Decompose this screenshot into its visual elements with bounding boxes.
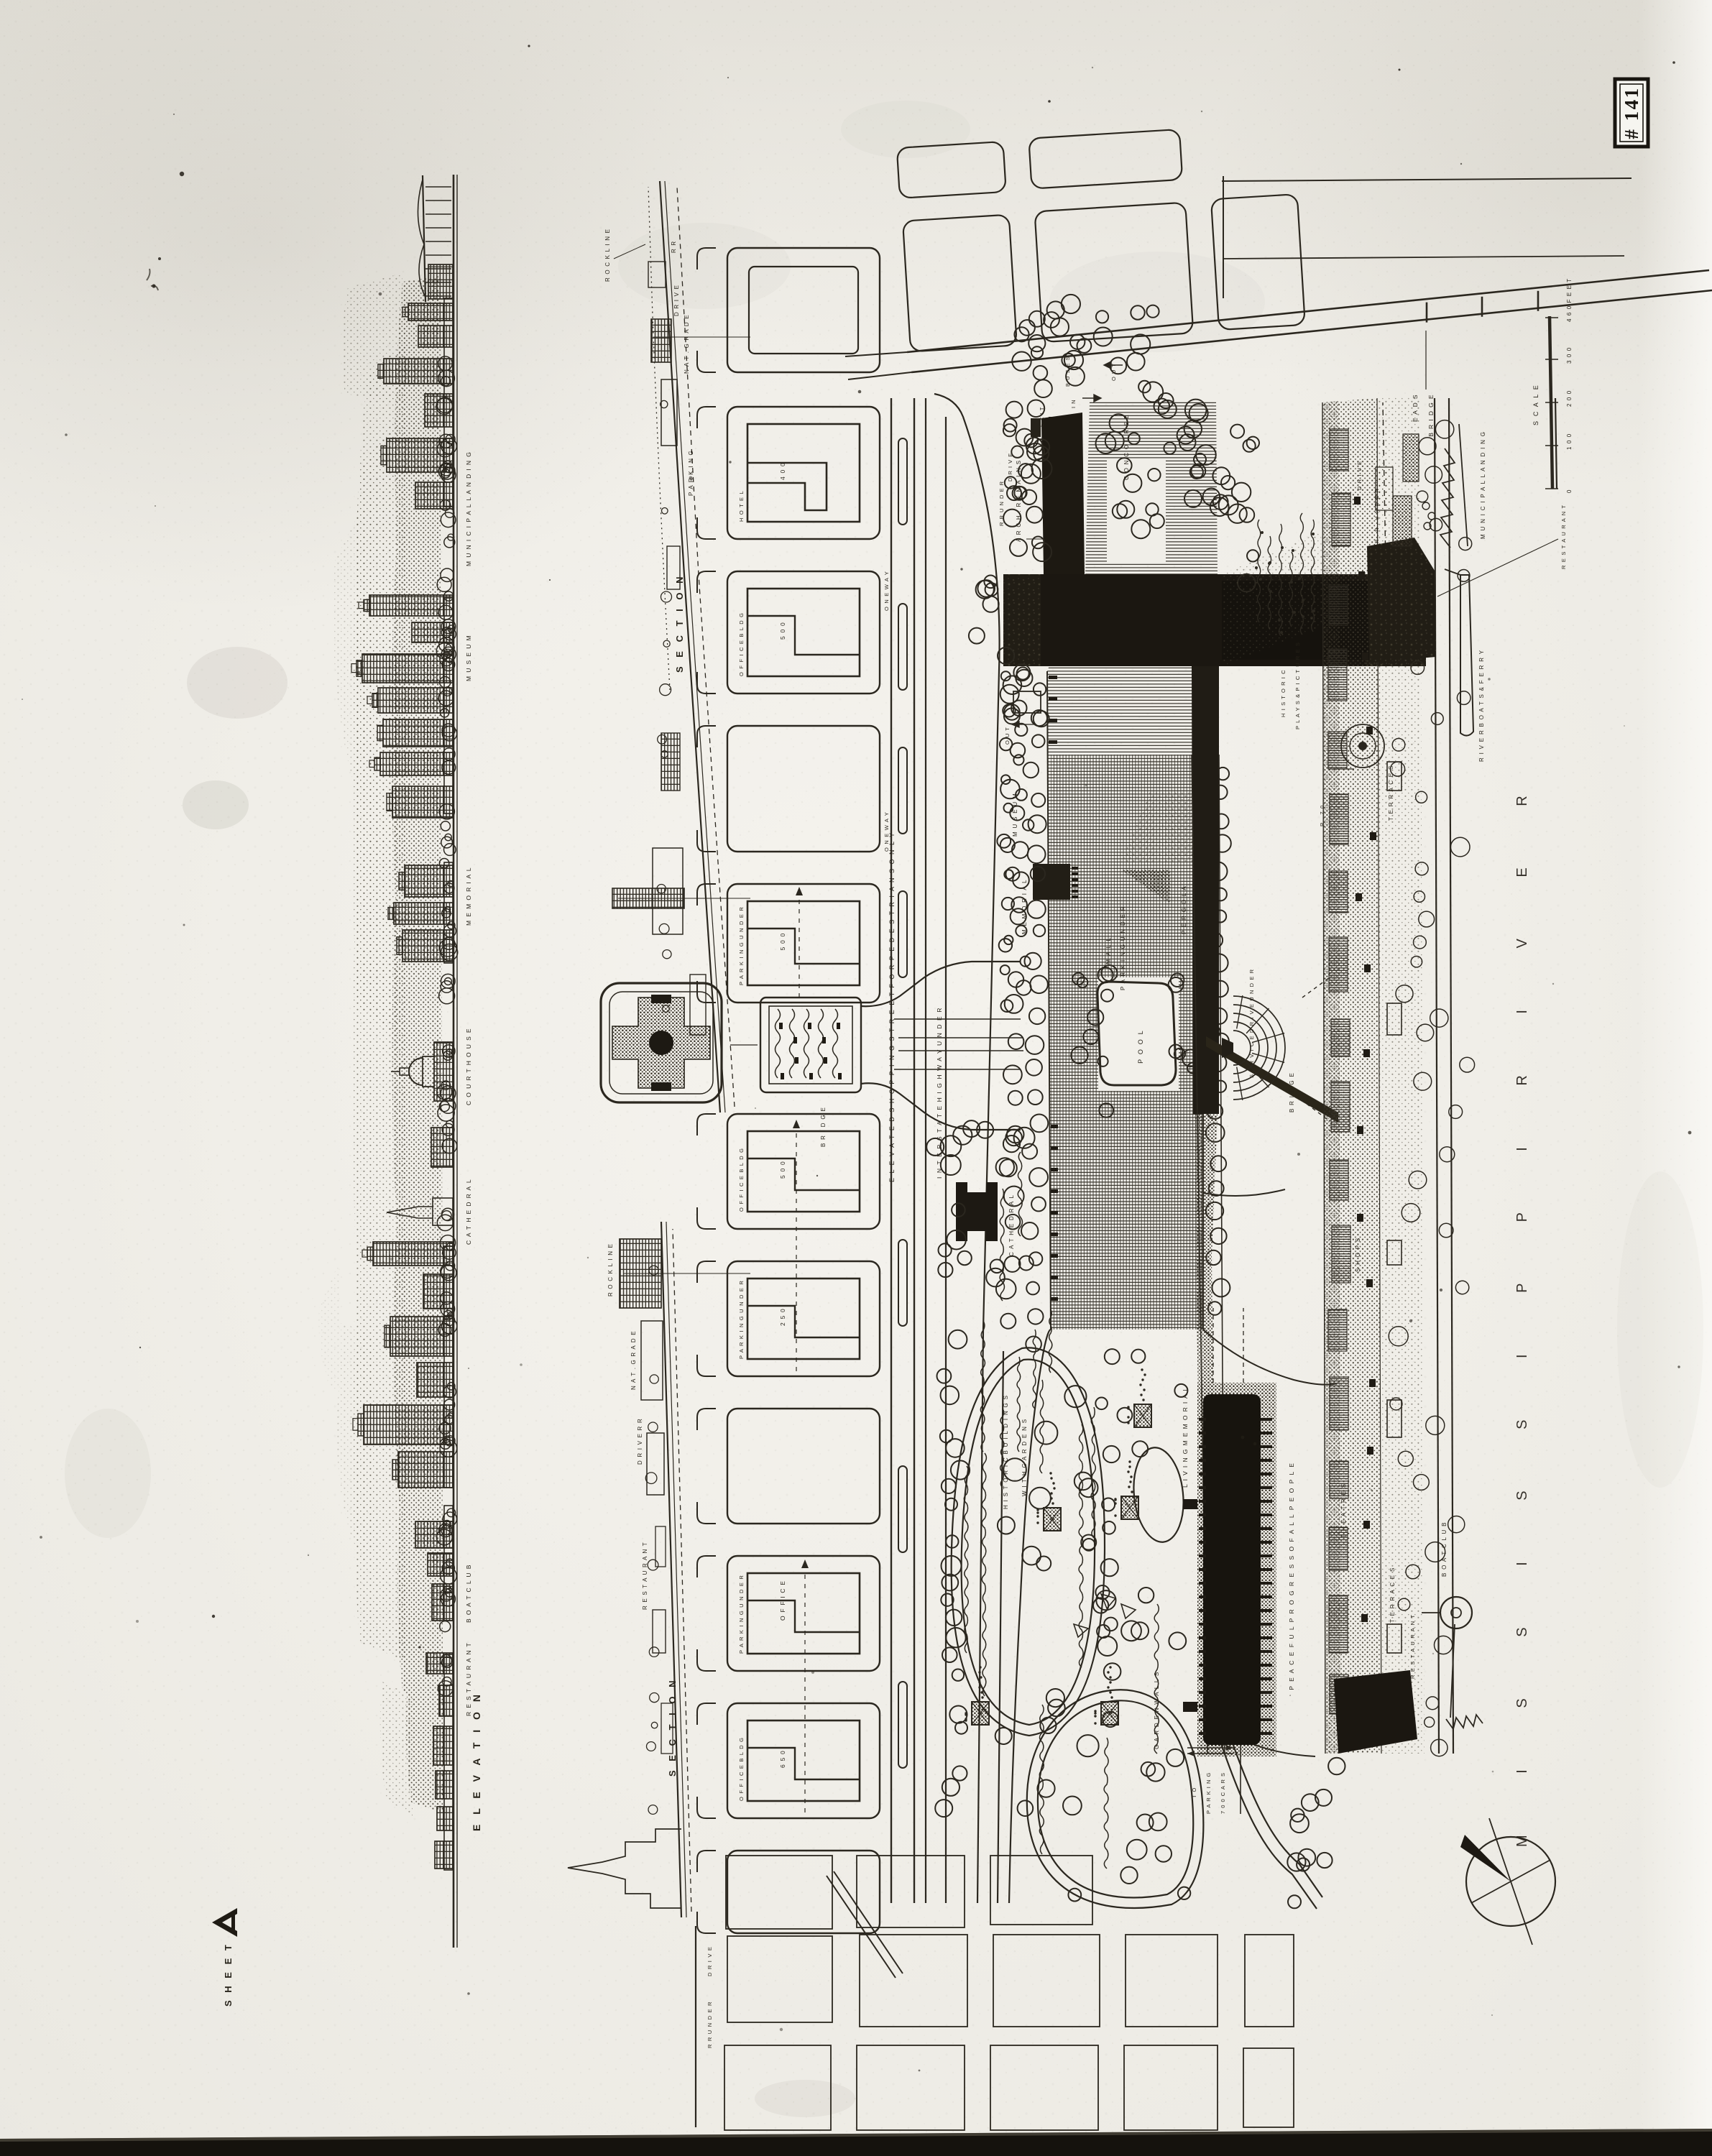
svg-text:O F F I C E B L D G: O F F I C E B L D G [738, 612, 745, 676]
svg-text:R E S T A U R A N T: R E S T A U R A N T [1560, 505, 1567, 569]
svg-text:B O A T C L U B: B O A T C L U B [465, 1564, 472, 1623]
svg-text:R R: R R [671, 241, 677, 253]
svg-text:P L A Y S & P I C T U R E S: P L A Y S & P I C T U R E S [1294, 642, 1301, 729]
svg-text:S H O P S: S H O P S [1355, 1238, 1361, 1272]
svg-text:M U S E U M: M U S E U M [465, 635, 472, 681]
svg-text:R E S T A U R A N T: R E S T A U R A N T [1409, 1614, 1416, 1679]
svg-text:B R I D G E: B R I D G E [1427, 394, 1435, 437]
svg-text:4 6 0 F E E T: 4 6 0 F E E T [1566, 278, 1573, 322]
svg-text:S E C T I O N: S E C T I O N [674, 573, 685, 673]
svg-text:O F F I C E B L D G: O F F I C E B L D G [738, 1737, 745, 1801]
svg-text:H O T E L: H O T E L [738, 490, 745, 522]
svg-text:P A R K I N G U N D E R: P A R K I N G U N D E R [738, 906, 745, 985]
svg-text:O N E W A Y: O N E W A Y [883, 571, 890, 611]
svg-text:3 0 0: 3 0 0 [1566, 347, 1573, 364]
svg-text:4 0 0: 4 0 0 [779, 462, 786, 480]
svg-text:R I V E R B O A T S & F: R I V E R B O A T S & F E R R Y [1478, 650, 1485, 762]
svg-text:P A R K I N G U N D E R: P A R K I N G U N D E R [738, 1280, 745, 1359]
svg-text:S E R V I C E D R I V E U: S E R V I C E D R I V E U N D E R [1248, 969, 1255, 1078]
svg-text:E X I T: E X I T [1040, 407, 1045, 427]
svg-text:T E R R A C E S: T E R R A C E S [1388, 765, 1394, 821]
svg-text:P A R K I N G: P A R K I N G [1205, 1772, 1212, 1814]
svg-text:T H E A T R E S: T H E A T R E S [1340, 1483, 1347, 1538]
svg-text:E L E V A T I O N: E L E V A T I O N [471, 1691, 482, 1831]
svg-text:D R I V E: D R I V E [1356, 461, 1363, 490]
svg-text:1 0 0: 1 0 0 [1566, 433, 1573, 450]
svg-text:C O U R T H O U S E: C O U R T H O U S E [465, 1028, 472, 1105]
svg-text:S H E E T: S H E E T [223, 1943, 234, 2007]
svg-text:S C A L E: S C A L E [1532, 384, 1540, 425]
svg-text:R R U N D E R: R R U N D E R [707, 2001, 713, 2048]
svg-text:T E R R A C E S: T E R R A C E S [1389, 1567, 1396, 1623]
svg-text:5 0 0: 5 0 0 [779, 933, 786, 951]
svg-text:D R I V E: D R I V E [707, 1946, 713, 1976]
svg-text:R O C K L I N E: R O C K L I N E [604, 229, 611, 282]
svg-text:7 0 0 C A R S: 7 0 0 C A R S [1220, 1772, 1226, 1814]
svg-text:B U S E S: B U S E S [1064, 356, 1071, 387]
svg-text:M E M O R I A L: M E M O R I A L [465, 867, 472, 926]
svg-text:P A R K I N G U N D E R: P A R K I N G U N D E R [738, 1575, 745, 1654]
svg-text:C O N C O U R S E: C O N C O U R S E [1123, 414, 1130, 480]
svg-text:D R I V E: D R I V E [673, 285, 680, 316]
svg-text:H I S T O R I C: H I S T O R I C [1280, 669, 1287, 717]
svg-text:M U N I C I P A L L A N D I: M U N I C I P A L L A N D I N G [1480, 431, 1486, 539]
svg-text:P O O L: P O O L [1137, 1029, 1144, 1064]
svg-text:M A L L: M A L L [1105, 936, 1112, 964]
svg-text:R O C K L I N E: R O C K L I N E [607, 1243, 614, 1296]
svg-text:T O: T O [1191, 1787, 1197, 1798]
svg-text:C A T H E D R A L: C A T H E D R A L [465, 1179, 472, 1245]
svg-text:E L E V A T E D S H O P P: E L E V A T E D S H O P P I N G S T R E … [888, 831, 896, 1182]
svg-text:C A T H E D R A L: C A T H E D R A L [1008, 1194, 1015, 1256]
svg-text:5 0 0: 5 0 0 [779, 1161, 786, 1179]
svg-text:M U N I C I P A L L A N D I: M U N I C I P A L L A N D I N G [465, 451, 472, 566]
svg-text:M I S S I S S I P P I R I: M I S S I S S I P P I R I V E R [1514, 767, 1530, 1847]
svg-text:O F F I C E: O F F I C E [779, 1580, 786, 1621]
svg-text:L I V I N G M E M O R I A L: L I V I N G M E M O R I A L [1182, 1387, 1189, 1488]
svg-text:0: 0 [1566, 489, 1573, 493]
svg-text:P A R K I N G: P A R K I N G [688, 450, 694, 496]
svg-text:R . 7 0: R . 7 0 [1319, 805, 1325, 827]
svg-text:G A R D E N W A L L S: G A R D E N W A L L S [1154, 1671, 1160, 1749]
svg-text:‘ P E A C E F U L P R O: ‘ P E A C E F U L P R O G R E S S O F A … [1288, 1462, 1295, 1696]
svg-text:S E C T I O N: S E C T I O N [667, 1677, 678, 1777]
svg-text:R R U N D E R: R R U N D E R [998, 481, 1005, 526]
svg-text:O U T: O U T [1004, 727, 1011, 745]
svg-text:# 141: # 141 [1621, 86, 1642, 139]
svg-text:6 5 0: 6 5 0 [779, 1750, 786, 1768]
svg-text:B O A T C L U B: B O A T C L U B [1441, 1521, 1448, 1577]
svg-text:B R I D G E: B R I D G E [1289, 1072, 1295, 1112]
svg-text:R E S T A U R A N T: R E S T A U R A N T [642, 1542, 648, 1610]
svg-text:N A T . G R A D E: N A T . G R A D E [684, 314, 690, 374]
svg-text:D R I V E R R: D R I V E R R [637, 1418, 643, 1465]
svg-text:O N E W A Y: O N E W A Y [883, 811, 890, 852]
svg-text:P A R K I N G U N D E R: P A R K I N G U N D E R [1120, 906, 1126, 990]
svg-text:2 5 0: 2 5 0 [779, 1308, 786, 1326]
svg-text:O F F I C E B L D G: O F F I C E B L D G [738, 1148, 745, 1212]
svg-text:W I T H G A R D E N S: W I T H G A R D E N S [1021, 1419, 1028, 1496]
svg-text:B R I D G E: B R I D G E [820, 1107, 827, 1147]
svg-text:2 0 0: 2 0 0 [1566, 390, 1573, 407]
svg-text:D R I V E: D R I V E [1007, 453, 1013, 482]
svg-text:5 0 0: 5 0 0 [779, 622, 786, 640]
svg-text:N A T . G R A D E: N A T . G R A D E [630, 1330, 637, 1390]
svg-text:I N: I N [1070, 399, 1077, 408]
svg-text:P E R G O L A: P E R G O L A [1181, 885, 1187, 934]
